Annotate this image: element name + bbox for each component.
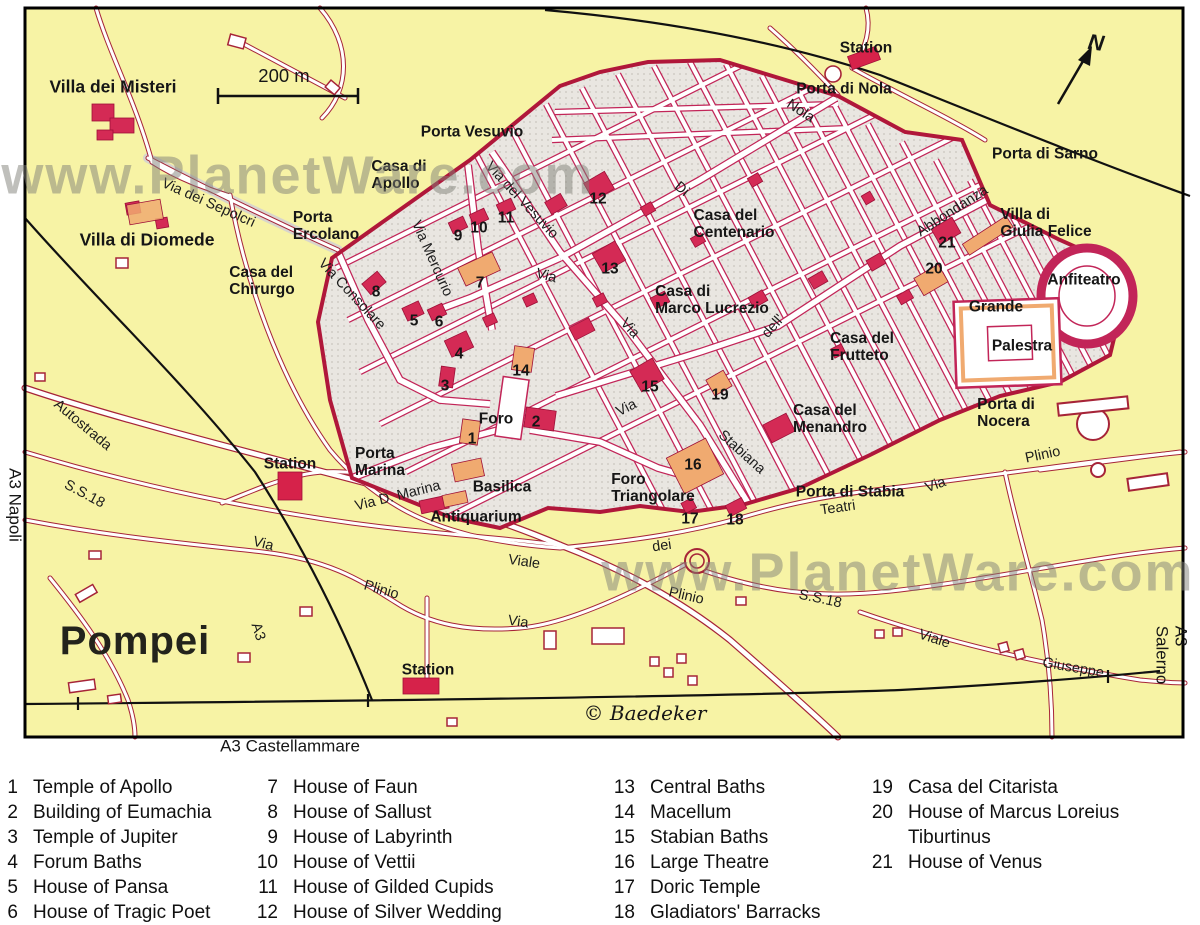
map-canvas: [0, 0, 1200, 925]
pompei-map-page: Villa dei MisteriVilla di DiomedeCasa de…: [0, 0, 1200, 925]
grande-palestra: [954, 298, 1062, 388]
